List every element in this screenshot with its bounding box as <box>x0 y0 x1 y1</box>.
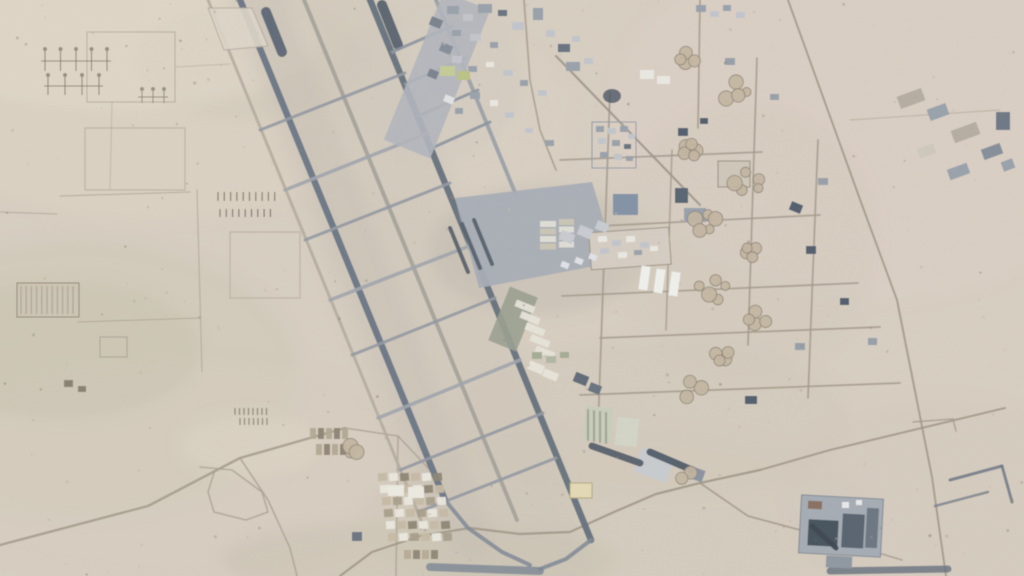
satellite-photo <box>0 0 1024 576</box>
satellite-photo-viewport <box>0 0 1024 576</box>
film-grain-overlay <box>0 0 1024 576</box>
